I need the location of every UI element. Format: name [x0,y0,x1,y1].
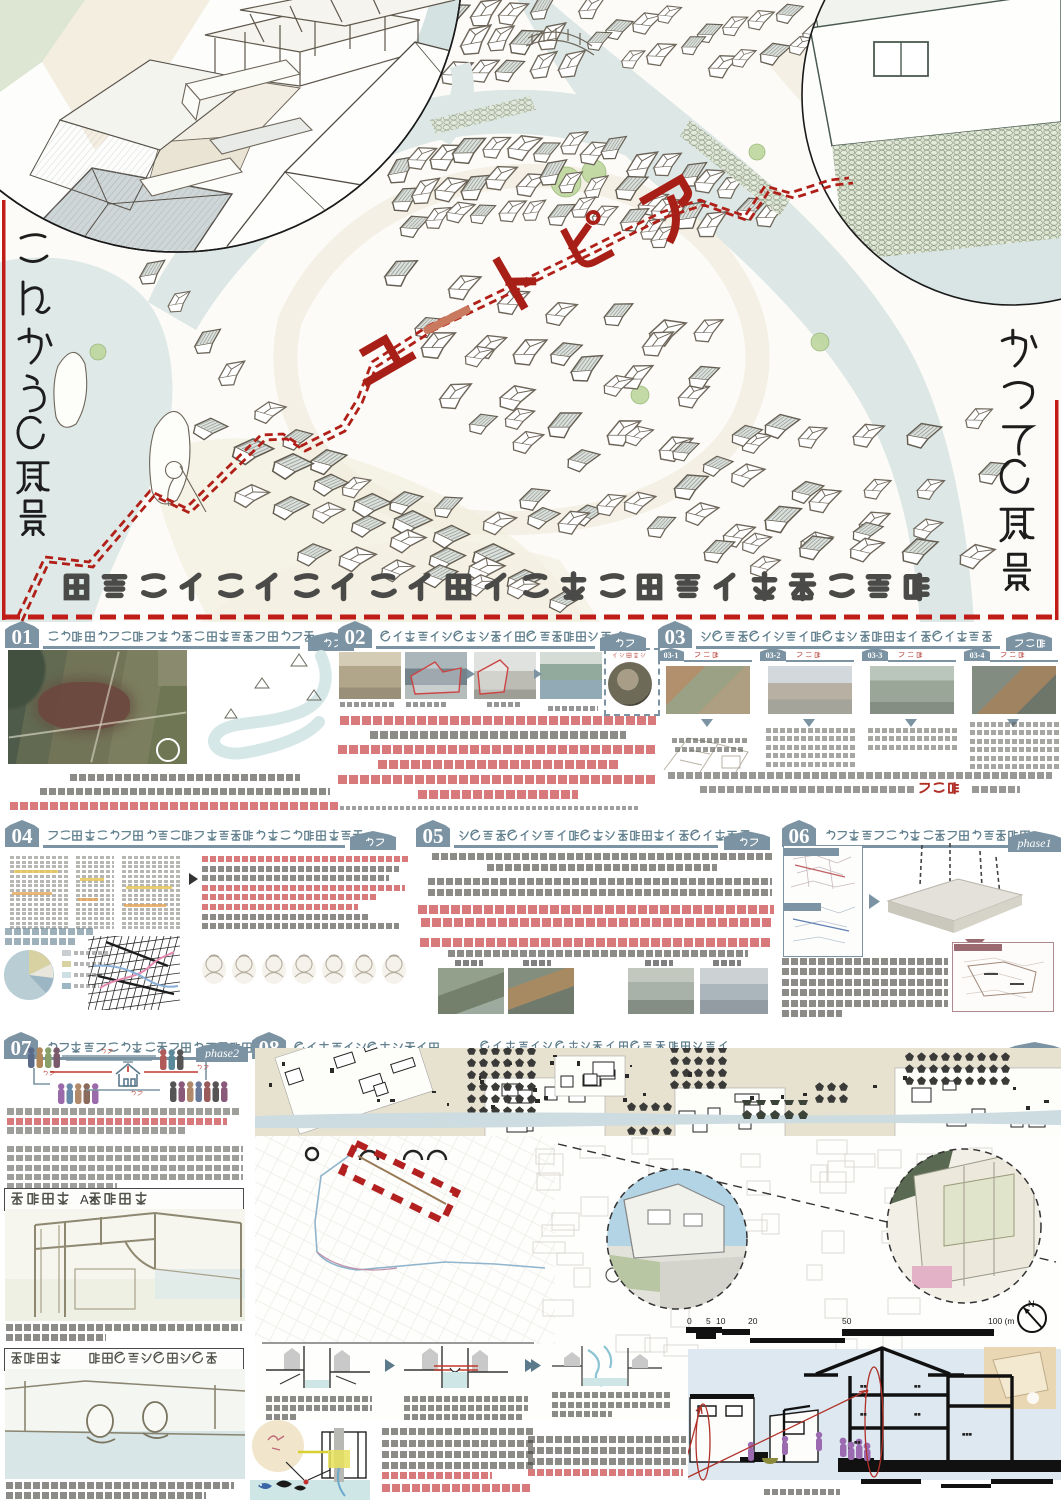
svg-text:■■: ■■ [860,1412,867,1418]
svg-text:■■: ■■ [914,1384,921,1390]
svg-text:20: 20 [748,1316,758,1326]
svg-text:■■: ■■ [854,1440,861,1446]
svg-text:■■: ■■ [914,1412,921,1418]
svg-text:100 (m): 100 (m) [988,1316,1014,1326]
svg-text:N: N [1028,1299,1035,1309]
svg-text:10: 10 [716,1316,726,1326]
svg-text:■■■: ■■■ [962,1432,972,1438]
svg-text:5: 5 [706,1316,711,1326]
svg-text:■■: ■■ [860,1384,867,1390]
svg-text:0: 0 [687,1316,692,1326]
svg-text:50: 50 [842,1316,852,1326]
